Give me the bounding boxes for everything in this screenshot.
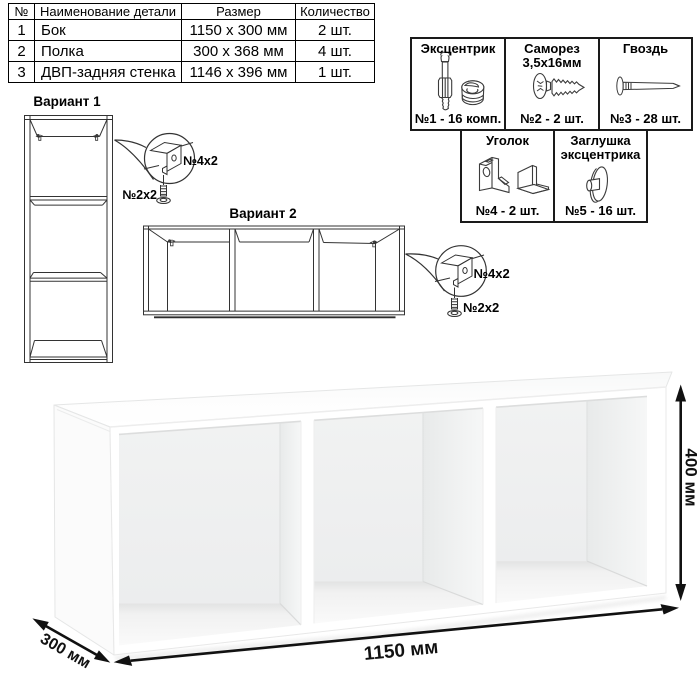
svg-text:1150 мм: 1150 мм bbox=[363, 637, 439, 665]
svg-text:№4x2: №4x2 bbox=[183, 154, 218, 168]
svg-text:Вариант 2: Вариант 2 bbox=[229, 206, 296, 221]
svg-text:№2x2: №2x2 bbox=[122, 188, 157, 202]
svg-text:№2x2: №2x2 bbox=[463, 300, 499, 315]
svg-text:Вариант 1: Вариант 1 bbox=[33, 94, 101, 109]
svg-text:400 мм: 400 мм bbox=[682, 448, 700, 506]
svg-text:№4x2: №4x2 bbox=[474, 266, 510, 281]
